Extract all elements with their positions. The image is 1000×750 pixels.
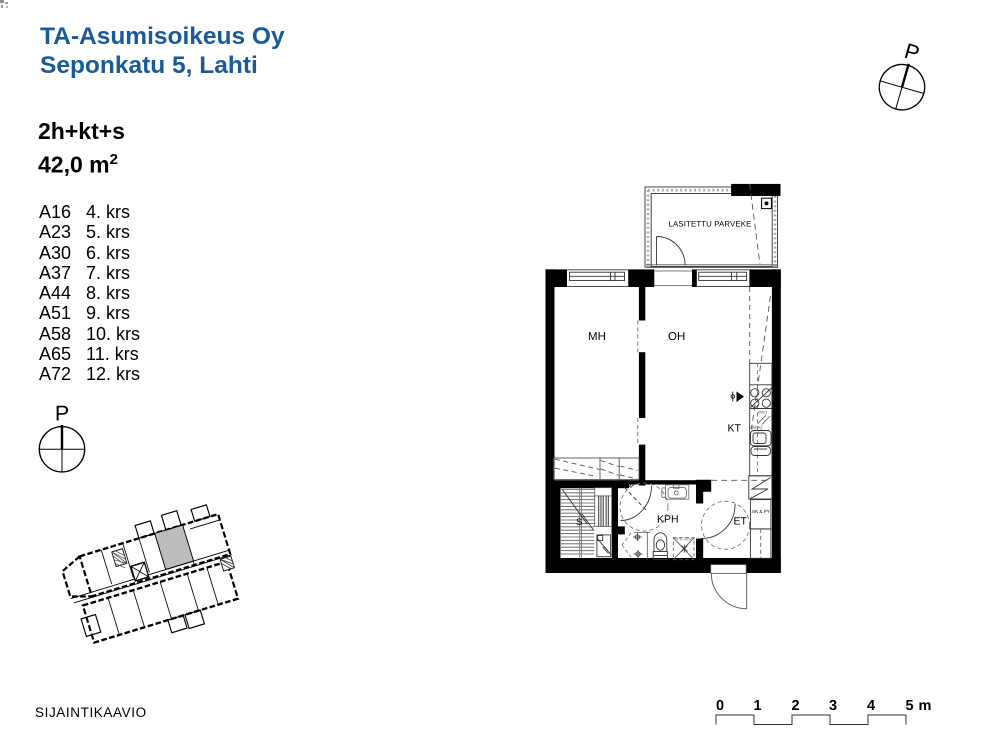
svg-text:OH: OH bbox=[668, 331, 685, 343]
svg-text:4: 4 bbox=[867, 698, 875, 714]
svg-text:m: m bbox=[919, 698, 932, 714]
svg-text:KT: KT bbox=[728, 423, 742, 435]
svg-text:P: P bbox=[55, 402, 69, 426]
svg-text:(MU): (MU) bbox=[758, 410, 768, 415]
svg-text:(APK): (APK) bbox=[751, 425, 764, 430]
svg-text:KPH: KPH bbox=[657, 514, 679, 526]
svg-text:ET: ET bbox=[734, 516, 748, 528]
svg-text:SK & PY: SK & PY bbox=[752, 509, 770, 514]
svg-text:PPK 60x60: PPK 60x60 bbox=[674, 537, 696, 542]
svg-text:MH: MH bbox=[588, 331, 606, 343]
svg-text:1: 1 bbox=[753, 698, 761, 714]
svg-text:0: 0 bbox=[716, 698, 724, 714]
svg-text:5: 5 bbox=[905, 698, 913, 714]
svg-text:3: 3 bbox=[829, 698, 837, 714]
svg-text:2: 2 bbox=[791, 698, 799, 714]
svg-text:P: P bbox=[902, 39, 922, 66]
svg-text:S: S bbox=[576, 517, 582, 528]
svg-text:LASITETTU PARVEKE: LASITETTU PARVEKE bbox=[669, 220, 752, 229]
